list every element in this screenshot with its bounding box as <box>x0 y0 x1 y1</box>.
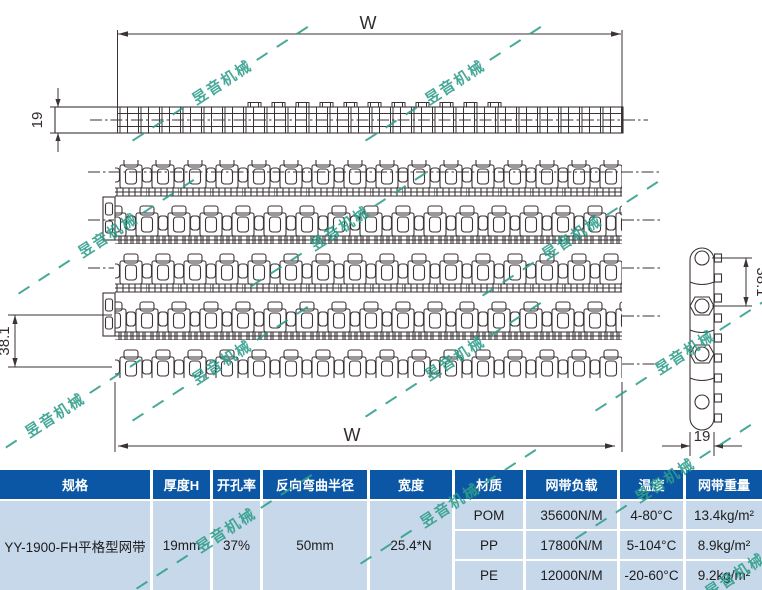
col-header-bend-radius: 反向弯曲半径 <box>263 470 367 499</box>
cell-width: 25.4*N <box>370 501 452 590</box>
cell-weight-pom: 13.4kg/m² <box>686 501 762 529</box>
col-header-weight: 网带重量 <box>686 470 762 499</box>
cell-material-pe: PE <box>455 561 523 590</box>
cell-load-pe: 12000N/M <box>526 561 617 590</box>
side-view: 38.1 19 <box>662 248 762 456</box>
spec-table: 规格 厚度H 开孔率 反向弯曲半径 宽度 材质 网带负载 温度 网带重量 YY-… <box>0 470 762 590</box>
col-header-thickness: 厚度H <box>153 470 210 499</box>
cell-material-pp: PP <box>455 531 523 559</box>
col-header-material: 材质 <box>455 470 523 499</box>
top-thickness-dim-label: 19 <box>29 112 46 129</box>
cell-open-rate: 37% <box>213 501 260 590</box>
cell-load-pom: 35600N/M <box>526 501 617 529</box>
technical-drawing: W 19 38.1 <box>0 0 762 470</box>
cell-weight-pe: 9.2kg/m² <box>686 561 762 590</box>
plan-width-dim-label: W <box>344 425 361 445</box>
top-width-dim-label: W <box>360 13 377 33</box>
cell-load-pp: 17800N/M <box>526 531 617 559</box>
cell-weight-pp: 8.9kg/m² <box>686 531 762 559</box>
col-header-open-rate: 开孔率 <box>213 470 260 499</box>
belt-spec-sheet: W 19 38.1 <box>0 0 762 590</box>
col-header-width: 宽度 <box>370 470 452 499</box>
plan-view: 38.1 W <box>0 160 662 452</box>
cell-material-pom: POM <box>455 501 523 529</box>
top-view: W 19 <box>29 13 648 152</box>
cell-temp-pp: 5-104°C <box>620 531 683 559</box>
col-header-temp: 温度 <box>620 470 683 499</box>
cell-bend-radius: 50mm <box>263 501 367 590</box>
col-header-spec: 规格 <box>0 470 150 499</box>
col-header-load: 网带负载 <box>526 470 617 499</box>
cell-temp-pom: 4-80°C <box>620 501 683 529</box>
side-view-tabs <box>715 254 722 422</box>
cell-spec: YY-1900-FH平格型网带 <box>0 501 150 590</box>
belt-grid <box>115 160 622 378</box>
plan-pitch-dim-label: 38.1 <box>0 326 13 355</box>
cell-temp-pe: -20-60°C <box>620 561 683 590</box>
side-pitch-dim-label: 38.1 <box>753 267 762 296</box>
side-thickness-dim-label: 19 <box>694 428 711 445</box>
cell-thickness: 19mm <box>153 501 210 590</box>
